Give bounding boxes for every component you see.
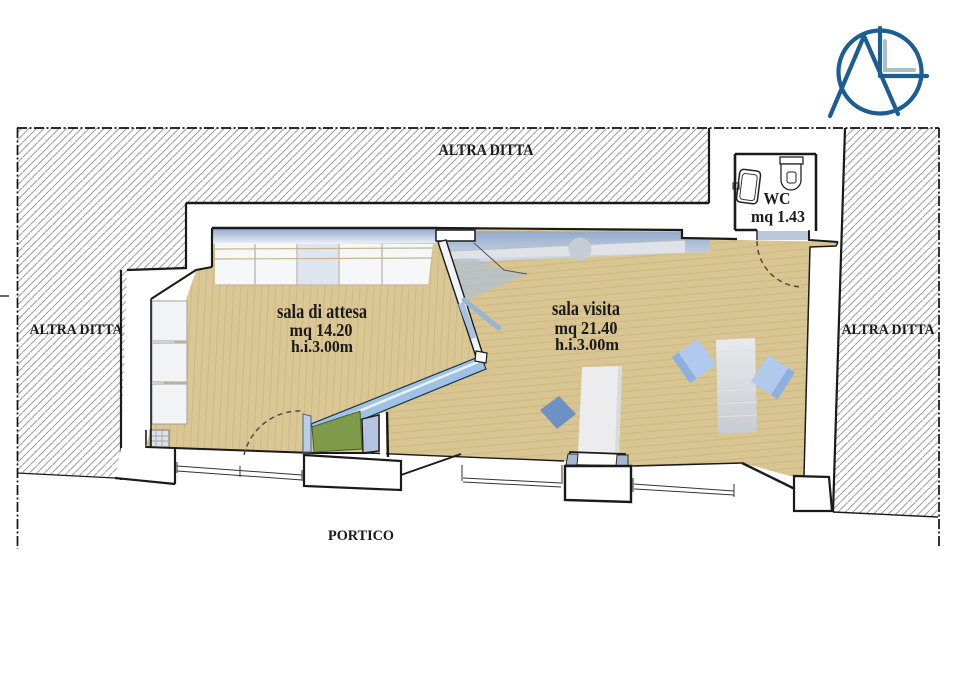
svg-text:h.i.3.00m: h.i.3.00m	[291, 337, 353, 356]
svg-text:ALTRA DITTA: ALTRA DITTA	[439, 142, 535, 159]
svg-text:ALTRA DITTA: ALTRA DITTA	[842, 322, 935, 338]
svg-text:sala visita: sala visita	[552, 298, 620, 320]
svg-text:h.i.3.00m: h.i.3.00m	[555, 335, 619, 354]
svg-text:PORTICO: PORTICO	[328, 528, 394, 544]
svg-text:mq 1.43: mq 1.43	[751, 207, 805, 226]
svg-text:WC: WC	[764, 189, 791, 208]
svg-text:ALTRA DITTA: ALTRA DITTA	[30, 322, 123, 338]
